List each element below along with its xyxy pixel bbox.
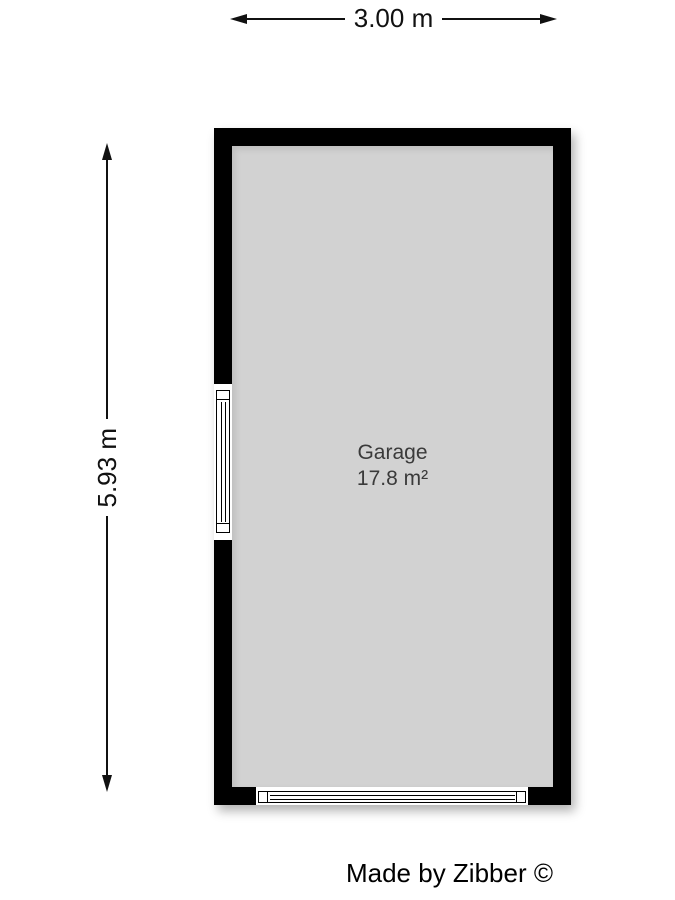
dimension-width: 3.00 m	[230, 8, 557, 30]
room-name: Garage	[232, 440, 553, 466]
dimension-width-label: 3.00 m	[354, 7, 434, 29]
door-glazing	[270, 795, 515, 800]
window-glazing	[221, 402, 226, 522]
garage-door-bottom	[256, 787, 528, 805]
window-left	[214, 384, 232, 540]
dimension-line	[247, 18, 345, 20]
dimension-line	[106, 160, 108, 419]
door-frame-end	[259, 792, 268, 802]
footer-credit: Made by Zibber ©	[346, 858, 553, 888]
garage-door-icon	[258, 791, 526, 803]
window-frame-end	[217, 523, 229, 532]
room-area: 17.8 m²	[232, 466, 553, 492]
window-icon	[216, 390, 230, 533]
dimension-line	[106, 516, 108, 775]
dimension-height-label: 5.93 m	[92, 428, 123, 508]
window-frame-end	[217, 391, 229, 400]
garage-floorplan: Garage 17.8 m²	[214, 128, 571, 805]
arrowhead-left-icon	[230, 14, 247, 24]
dimension-line	[442, 18, 540, 20]
arrowhead-down-icon	[102, 775, 112, 792]
floorplan-page: 3.00 m 5.93 m	[0, 0, 675, 900]
arrowhead-right-icon	[540, 14, 557, 24]
dimension-height: 5.93 m	[90, 143, 124, 792]
door-frame-end	[516, 792, 525, 802]
arrowhead-up-icon	[102, 143, 112, 160]
room-label: Garage 17.8 m²	[232, 440, 553, 492]
